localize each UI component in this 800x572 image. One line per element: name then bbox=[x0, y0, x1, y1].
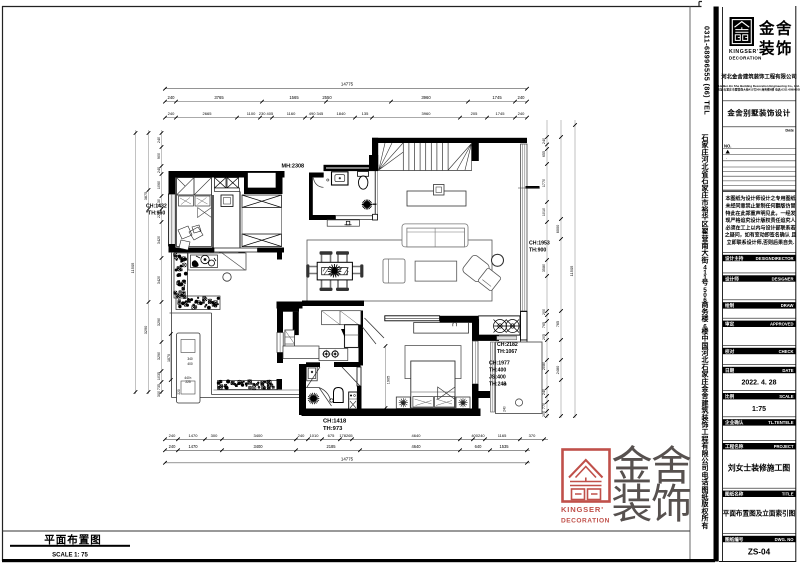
svg-text:装: 装 bbox=[701, 413, 709, 422]
svg-text:11505: 11505 bbox=[569, 265, 574, 277]
svg-text:刘女士装修施工图: 刘女士装修施工图 bbox=[728, 463, 791, 473]
svg-text:3765: 3765 bbox=[214, 95, 224, 100]
svg-text:KINGSER': KINGSER' bbox=[729, 49, 759, 55]
svg-text:400240: 400240 bbox=[471, 433, 485, 438]
svg-text:建: 建 bbox=[702, 398, 710, 407]
svg-text:3290: 3290 bbox=[157, 352, 161, 360]
svg-text:审定: 审定 bbox=[725, 321, 735, 328]
svg-text:庄: 庄 bbox=[702, 147, 709, 156]
svg-text:2665: 2665 bbox=[203, 111, 213, 116]
svg-text:绘制: 绘制 bbox=[725, 302, 735, 309]
svg-text:240: 240 bbox=[542, 138, 546, 144]
svg-text:655: 655 bbox=[542, 151, 546, 157]
svg-text:1745: 1745 bbox=[496, 111, 506, 116]
svg-text:平面布置图及立面索引图: 平面布置图及立面索引图 bbox=[723, 509, 796, 518]
svg-text:ZS-04: ZS-04 bbox=[748, 548, 771, 557]
svg-text:240: 240 bbox=[169, 433, 176, 438]
svg-text:裕: 裕 bbox=[701, 205, 709, 214]
svg-text:设计主持: 设计主持 bbox=[725, 255, 744, 262]
svg-text:240: 240 bbox=[169, 444, 177, 449]
svg-text:TH:900: TH:900 bbox=[529, 248, 546, 254]
svg-text:14775: 14775 bbox=[341, 456, 354, 461]
svg-text:900: 900 bbox=[157, 153, 161, 159]
svg-text:205: 205 bbox=[542, 334, 546, 340]
svg-text:1745: 1745 bbox=[492, 95, 502, 100]
svg-text:话: 话 bbox=[702, 478, 709, 487]
svg-text:特此在此郑重声明见此，一经发: 特此在此郑重声明见此，一经发 bbox=[725, 210, 796, 217]
svg-text:河北金舍建筑装饰工程有限公司: 河北金舍建筑装饰工程有限公司 bbox=[721, 72, 796, 80]
svg-text:华: 华 bbox=[702, 212, 709, 221]
svg-text:490 345: 490 345 bbox=[309, 111, 324, 116]
svg-text:DESIGNER: DESIGNER bbox=[772, 276, 794, 281]
svg-text:1470: 1470 bbox=[188, 444, 198, 449]
svg-text:商: 商 bbox=[702, 300, 709, 309]
svg-text:装饰: 装饰 bbox=[758, 39, 793, 58]
svg-text:225: 225 bbox=[185, 380, 191, 384]
svg-text:CH:1418: CH:1418 bbox=[323, 419, 347, 425]
svg-text:纸: 纸 bbox=[702, 492, 709, 501]
svg-text:1010: 1010 bbox=[542, 208, 546, 216]
svg-text:3420: 3420 bbox=[157, 236, 161, 244]
svg-text:中: 中 bbox=[702, 334, 709, 343]
svg-text:640: 640 bbox=[475, 444, 483, 449]
svg-text:金舍: 金舍 bbox=[758, 19, 793, 38]
svg-text:翟: 翟 bbox=[702, 227, 709, 236]
svg-text:平面布置图: 平面布置图 bbox=[44, 533, 102, 546]
svg-text:240: 240 bbox=[542, 389, 546, 395]
svg-text:家: 家 bbox=[702, 140, 710, 149]
svg-text:图纸编号: 图纸编号 bbox=[725, 536, 744, 543]
svg-text:1160: 1160 bbox=[287, 111, 296, 116]
svg-text:CH:1432: CH:1432 bbox=[146, 204, 167, 210]
svg-text:3580: 3580 bbox=[542, 264, 546, 272]
svg-text:限: 限 bbox=[702, 449, 710, 458]
svg-text:765: 765 bbox=[556, 321, 560, 327]
svg-text:必须在工上以内与设计部联系若: 必须在工上以内与设计部联系若 bbox=[724, 224, 795, 231]
svg-text:240: 240 bbox=[518, 111, 525, 116]
svg-text:图: 图 bbox=[702, 485, 709, 494]
svg-text:石: 石 bbox=[701, 363, 709, 371]
svg-text:200: 200 bbox=[542, 309, 546, 315]
svg-text:1535: 1535 bbox=[499, 444, 509, 449]
svg-text:企业确认: 企业确认 bbox=[724, 419, 744, 426]
svg-text:3400: 3400 bbox=[254, 433, 264, 438]
svg-text:APPROVED: APPROVED bbox=[770, 322, 794, 327]
svg-text:本图纸为设计师设计之专用图纸: 本图纸为设计师设计之专用图纸 bbox=[724, 195, 795, 202]
svg-text:DWG. NO: DWG. NO bbox=[775, 537, 795, 542]
svg-text:TITLE: TITLE bbox=[782, 492, 794, 497]
svg-text:金舍别墅装饰设计: 金舍别墅装饰设计 bbox=[726, 108, 790, 118]
svg-text:楼: 楼 bbox=[702, 314, 709, 323]
svg-text:2550: 2550 bbox=[322, 95, 332, 100]
svg-text:178265: 178265 bbox=[339, 433, 353, 438]
svg-text:DESIGNDIRECTOR: DESIGNDIRECTOR bbox=[756, 256, 794, 261]
svg-text:240: 240 bbox=[503, 406, 507, 412]
svg-text:240: 240 bbox=[157, 167, 161, 173]
svg-text:1905: 1905 bbox=[387, 376, 391, 384]
svg-text:765: 765 bbox=[542, 322, 546, 328]
svg-text:省: 省 bbox=[701, 169, 709, 178]
svg-text:1870: 1870 bbox=[167, 354, 171, 362]
svg-text:3875: 3875 bbox=[144, 192, 148, 200]
svg-text:南: 南 bbox=[702, 241, 709, 250]
svg-text:Date: Date bbox=[785, 128, 794, 133]
svg-text:CH:1977: CH:1977 bbox=[489, 361, 510, 367]
svg-text:KINGSER': KINGSER' bbox=[561, 505, 604, 514]
svg-text:3400: 3400 bbox=[253, 444, 263, 449]
svg-text:公: 公 bbox=[702, 457, 709, 465]
svg-text:4640: 4640 bbox=[412, 433, 422, 438]
svg-text:DECORATION: DECORATION bbox=[729, 55, 762, 60]
svg-text:·: · bbox=[726, 156, 728, 161]
svg-text:3290: 3290 bbox=[157, 318, 161, 326]
svg-text:设计师: 设计师 bbox=[725, 275, 739, 282]
svg-text:1770: 1770 bbox=[542, 179, 546, 187]
svg-text:石: 石 bbox=[701, 134, 709, 142]
svg-text:工程名称: 工程名称 bbox=[725, 443, 744, 450]
svg-text:240: 240 bbox=[518, 95, 526, 100]
svg-text:3960: 3960 bbox=[422, 111, 432, 116]
svg-text:SCALE 1: 75: SCALE 1: 75 bbox=[52, 553, 88, 559]
svg-text:有: 有 bbox=[702, 521, 709, 530]
svg-text:石: 石 bbox=[701, 177, 709, 185]
svg-text:PROJECT: PROJECT bbox=[774, 444, 794, 449]
svg-text:比例: 比例 bbox=[725, 393, 735, 400]
svg-text:现严格追究设计版权责任追究人: 现严格追究设计版权责任追究人 bbox=[725, 217, 796, 224]
svg-text:135: 135 bbox=[362, 111, 369, 116]
svg-text:家: 家 bbox=[702, 370, 710, 379]
svg-text:未经同意禁止复制任何翻版仿冒: 未经同意禁止复制任何翻版仿冒 bbox=[724, 203, 795, 210]
svg-text:675: 675 bbox=[328, 433, 335, 438]
svg-text:营: 营 bbox=[702, 234, 709, 243]
svg-text:4640: 4640 bbox=[411, 444, 421, 449]
svg-text:河: 河 bbox=[702, 348, 709, 357]
svg-text:2022. 4. 28: 2022. 4. 28 bbox=[741, 380, 776, 387]
svg-text:饰: 饰 bbox=[702, 420, 709, 429]
svg-text:庄: 庄 bbox=[702, 191, 709, 200]
svg-text:图纸名称: 图纸名称 bbox=[725, 491, 744, 498]
svg-text:TL.TENTELE: TL.TENTELE bbox=[768, 420, 794, 425]
svg-text:CH:1953: CH:1953 bbox=[529, 241, 550, 247]
svg-text:市: 市 bbox=[702, 198, 709, 207]
svg-text:2480: 2480 bbox=[556, 366, 560, 374]
svg-text:11505: 11505 bbox=[130, 262, 135, 274]
svg-text:DRAW: DRAW bbox=[781, 303, 794, 308]
svg-text:工: 工 bbox=[702, 428, 709, 436]
svg-text:地址:石家庄市翟营南大街411号506 商务楼6楼 电话:0: 地址:石家庄市翟营南大街411号506 商务楼6楼 电话:0311-689965… bbox=[717, 88, 800, 92]
svg-text:1010: 1010 bbox=[310, 433, 320, 438]
svg-text:筑: 筑 bbox=[702, 406, 709, 415]
svg-text:金: 金 bbox=[701, 384, 710, 393]
svg-text:240: 240 bbox=[168, 95, 176, 100]
svg-text:TH:1067: TH:1067 bbox=[497, 349, 517, 355]
svg-text:家: 家 bbox=[702, 183, 710, 192]
svg-text:00: 00 bbox=[503, 383, 507, 387]
svg-text:舍: 舍 bbox=[701, 391, 710, 400]
svg-text:北: 北 bbox=[702, 162, 709, 171]
svg-text:SCALE: SCALE bbox=[779, 394, 793, 399]
svg-text:版: 版 bbox=[702, 499, 709, 508]
svg-text:1840: 1840 bbox=[337, 111, 347, 116]
svg-text:庄: 庄 bbox=[702, 377, 709, 386]
svg-text:电: 电 bbox=[702, 470, 709, 479]
svg-text:日期: 日期 bbox=[725, 367, 735, 374]
svg-text:国: 国 bbox=[702, 341, 709, 350]
svg-text:1470: 1470 bbox=[189, 433, 199, 438]
svg-text:北: 北 bbox=[702, 355, 709, 364]
svg-text:2080: 2080 bbox=[542, 362, 546, 370]
svg-text:3290: 3290 bbox=[144, 326, 148, 334]
svg-text:3960: 3960 bbox=[421, 95, 431, 100]
svg-text:200: 200 bbox=[542, 411, 546, 417]
svg-text:司: 司 bbox=[702, 464, 709, 472]
svg-text:240: 240 bbox=[157, 137, 161, 143]
svg-text:240: 240 bbox=[168, 111, 175, 116]
svg-text:*TH:960: *TH:960 bbox=[146, 211, 165, 217]
svg-text:14775: 14775 bbox=[341, 82, 354, 87]
svg-text:0311-68996555 (86) TEL: 0311-68996555 (86) TEL bbox=[703, 26, 712, 115]
svg-text:校对: 校对 bbox=[725, 348, 735, 355]
svg-text:所: 所 bbox=[702, 514, 709, 523]
svg-text:220: 220 bbox=[177, 389, 181, 395]
svg-text:3420: 3420 bbox=[157, 276, 161, 284]
svg-text:之疑问，如有变动即签名确认 且: 之疑问，如有变动即签名确认 且 bbox=[725, 232, 796, 239]
svg-text:DECORATION: DECORATION bbox=[561, 518, 610, 525]
svg-text:区: 区 bbox=[702, 220, 709, 228]
svg-text:340: 340 bbox=[187, 357, 193, 361]
svg-text:装: 装 bbox=[612, 481, 653, 527]
svg-text:735: 735 bbox=[157, 384, 161, 390]
svg-text:1100: 1100 bbox=[247, 111, 256, 116]
svg-text:务: 务 bbox=[702, 307, 710, 316]
svg-text:楼: 楼 bbox=[702, 326, 709, 335]
svg-text:JS:400: JS:400 bbox=[489, 375, 506, 381]
svg-text:2185: 2185 bbox=[326, 444, 336, 449]
svg-text:TH:400: TH:400 bbox=[489, 368, 506, 374]
svg-text:300: 300 bbox=[157, 391, 161, 397]
svg-text:240: 240 bbox=[298, 433, 305, 438]
svg-text:饰: 饰 bbox=[651, 481, 692, 527]
svg-text:1565: 1565 bbox=[289, 95, 299, 100]
svg-text:300: 300 bbox=[211, 433, 218, 438]
svg-text:370: 370 bbox=[529, 433, 536, 438]
svg-text:CH:2182: CH:2182 bbox=[497, 342, 518, 348]
svg-text:NO.: NO. bbox=[724, 144, 731, 149]
svg-text:1:75: 1:75 bbox=[752, 406, 766, 413]
svg-text:1035: 1035 bbox=[157, 372, 161, 380]
svg-text:号: 号 bbox=[702, 278, 709, 287]
svg-text:205: 205 bbox=[471, 111, 478, 116]
svg-text:MH:2308: MH:2308 bbox=[282, 164, 305, 170]
svg-text:街: 街 bbox=[701, 255, 709, 264]
svg-text:程: 程 bbox=[702, 434, 709, 443]
svg-text:DATE: DATE bbox=[782, 368, 793, 373]
svg-text:770: 770 bbox=[542, 403, 546, 409]
svg-text:河: 河 bbox=[702, 155, 709, 164]
svg-text:400: 400 bbox=[187, 362, 193, 366]
svg-text:有: 有 bbox=[702, 442, 709, 451]
svg-text:6000: 6000 bbox=[556, 225, 560, 233]
svg-text:CHECK: CHECK bbox=[779, 349, 794, 354]
svg-text:权: 权 bbox=[701, 506, 710, 515]
svg-text:立即联系设计师,否则后果自负.: 立即联系设计师,否则后果自负. bbox=[727, 239, 795, 246]
svg-text:230 405: 230 405 bbox=[259, 111, 274, 116]
svg-text:1165: 1165 bbox=[498, 433, 507, 438]
svg-text:1060: 1060 bbox=[157, 181, 161, 189]
svg-text:TH:973: TH:973 bbox=[323, 426, 343, 432]
svg-text:大: 大 bbox=[702, 248, 709, 257]
